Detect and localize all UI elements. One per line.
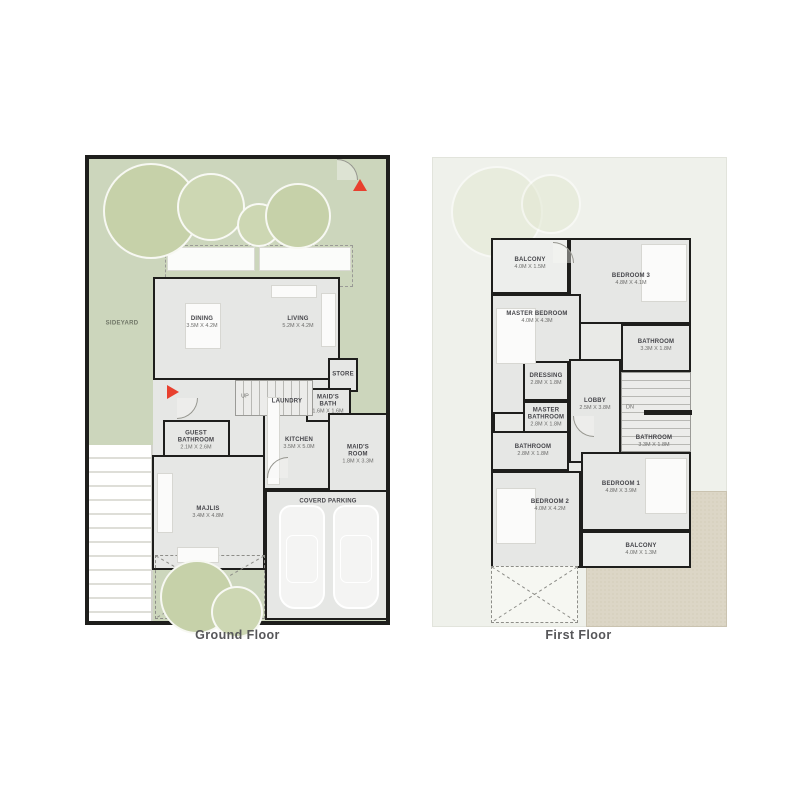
tree — [521, 174, 581, 234]
bed — [496, 488, 536, 544]
bed — [645, 458, 687, 514]
master-bathroom-label: MASTER BATHROOM2.8M X 1.8M — [526, 408, 566, 429]
entry-arrow-icon — [353, 179, 367, 191]
living-sofa — [271, 285, 317, 298]
maids-room-label: MAID'S ROOM1.8M X 3.3M — [337, 445, 379, 466]
balcony-bottom-label: BALCONY4.0M X 1.3M — [613, 543, 669, 557]
planter-bed — [491, 566, 578, 623]
dressing-label: DRESSING2.8M X 1.8M — [524, 373, 568, 387]
majlis-label: MAJLIS3.4M X 4.8M — [180, 506, 236, 520]
floorplan-sheet: BACKYARD SIDEYARD DINING3.5M X 4.2M LIVI… — [0, 0, 800, 800]
car — [333, 505, 379, 609]
stairs-down-label: DN — [620, 405, 640, 412]
bathroom-left-label: BATHROOM2.8M X 1.8M — [505, 444, 561, 458]
guest-bathroom-label: GUEST BATHROOM2.1M X 2.6M — [173, 431, 219, 452]
tree — [177, 173, 245, 241]
tree — [265, 183, 331, 249]
covered-parking-label: COVERD PARKING — [283, 498, 373, 505]
kitchen-label: KITCHEN3.5M X 5.0M — [271, 437, 327, 451]
dining-label: DINING3.5M X 4.2M — [174, 316, 230, 330]
planter-cross-lines — [492, 567, 577, 622]
first-floor-caption: First Floor — [432, 628, 725, 642]
balcony-top-label: BALCONY4.0M X 1.5M — [502, 257, 558, 271]
pergola-panel — [167, 247, 255, 271]
master-bedroom-label: MASTER BEDROOM4.0M X 4.3M — [501, 311, 573, 325]
gate-door-arc — [337, 159, 358, 180]
stairs-up-label: UP — [233, 394, 257, 401]
living-label: LIVING5.2M X 4.2M — [270, 316, 326, 330]
maids-bath-label: MAID'S BATH1.6M X 1.6M — [310, 395, 346, 416]
sideyard-label: SIDEYARD — [94, 310, 150, 329]
lobby-label: LOBBY2.5M X 3.8M — [567, 398, 623, 412]
majlis-sofa — [157, 473, 173, 533]
bedroom2-label: BEDROOM 24.0M X 4.2M — [522, 499, 578, 513]
laundry-label: LAUNDRY — [267, 398, 307, 405]
bathroom-top-label: BATHROOM3.3M X 1.8M — [628, 339, 684, 353]
bathroom-right-label: BATHROOM3.3M X 1.8M — [626, 435, 682, 449]
entry-arrow-icon — [167, 385, 179, 399]
car — [279, 505, 325, 609]
side-trellis — [89, 445, 153, 621]
ground-floor-plan: BACKYARD SIDEYARD DINING3.5M X 4.2M LIVI… — [85, 155, 390, 625]
ground-floor-caption: Ground Floor — [85, 628, 390, 642]
bedroom3-label: BEDROOM 34.8M X 4.1M — [603, 273, 659, 287]
first-floor-plan: BALCONY4.0M X 1.5M BEDROOM 34.8M X 4.1M … — [432, 157, 727, 627]
stair-landing — [644, 410, 692, 415]
pergola-panel — [259, 247, 351, 271]
store-label: STORE — [315, 371, 371, 378]
bedroom1-label: BEDROOM 14.8M X 3.9M — [593, 481, 649, 495]
